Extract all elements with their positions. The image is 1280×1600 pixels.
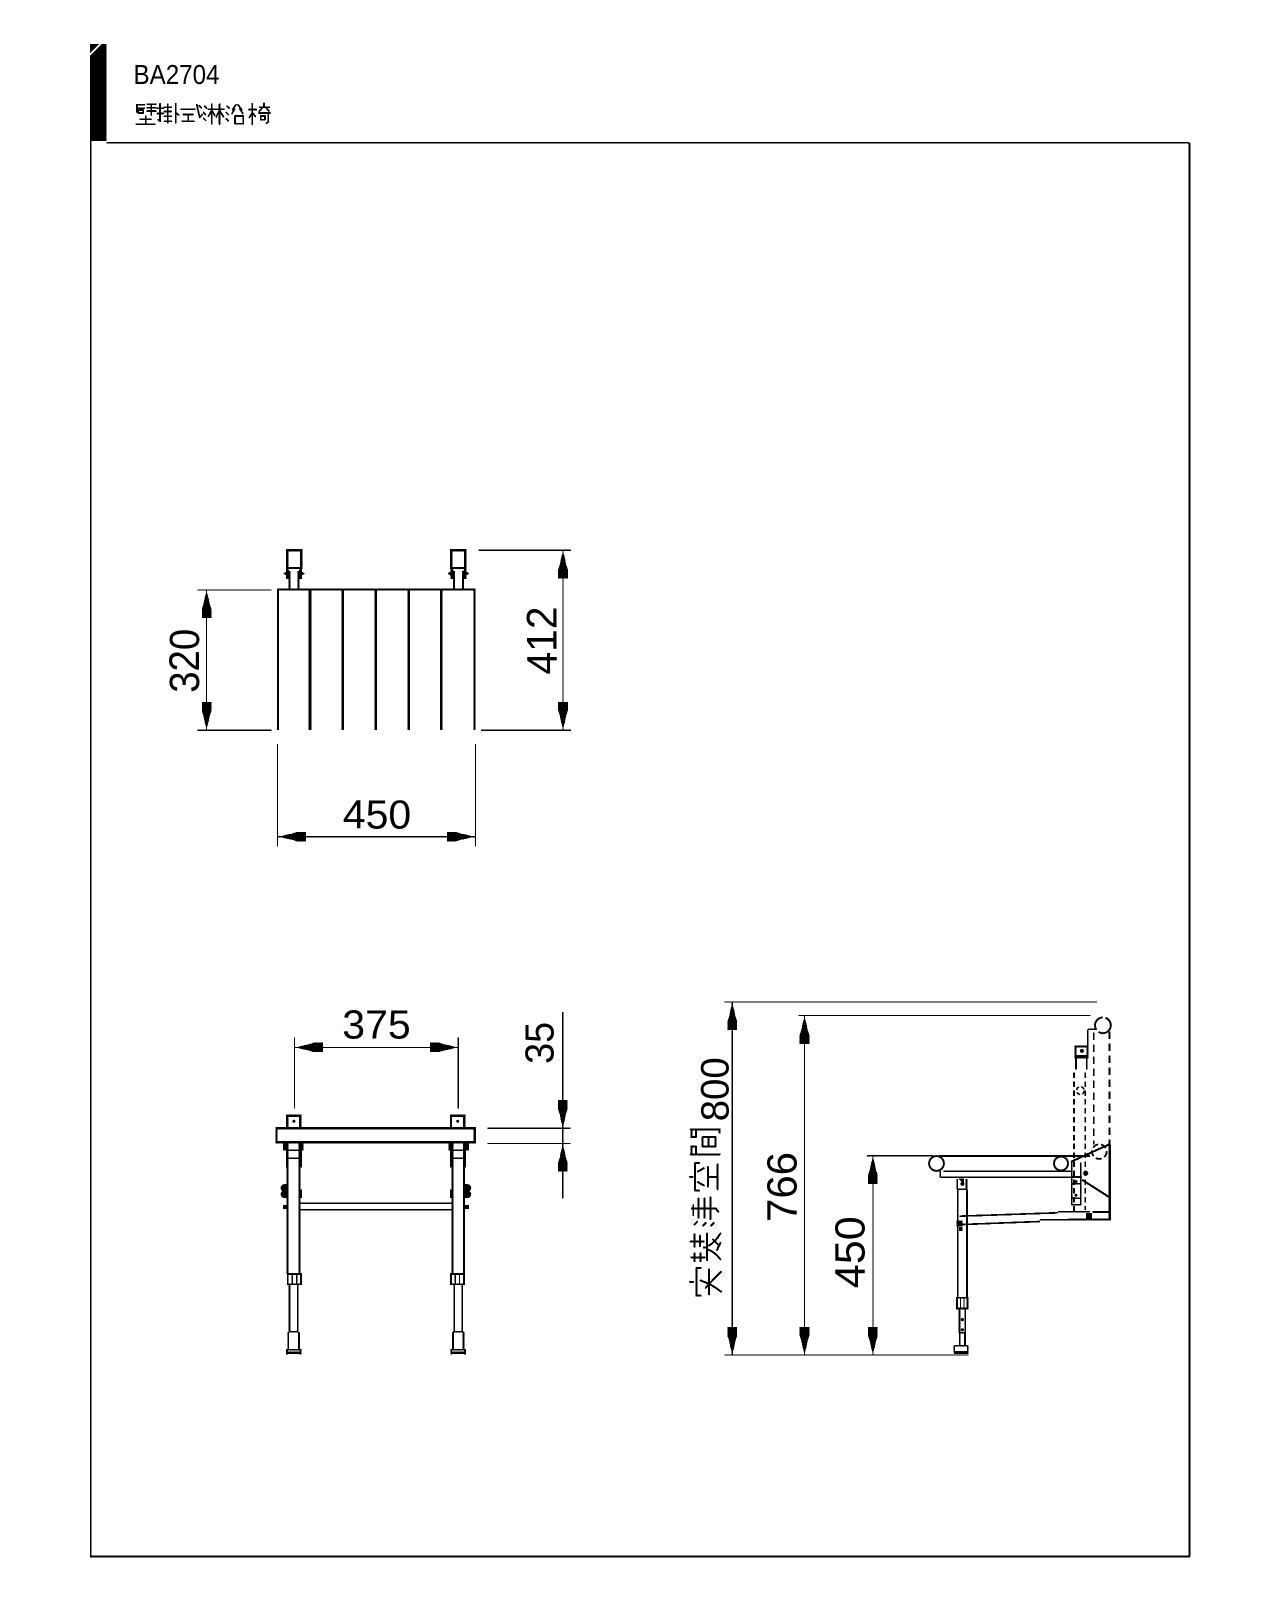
svg-text:BA2704: BA2704 xyxy=(134,59,220,90)
svg-text:375: 375 xyxy=(342,1002,410,1048)
svg-text:800: 800 xyxy=(693,1057,737,1121)
svg-text:766: 766 xyxy=(759,1152,807,1222)
svg-text:450: 450 xyxy=(343,792,411,838)
svg-text:412: 412 xyxy=(518,607,566,675)
svg-text:35: 35 xyxy=(517,1022,563,1064)
svg-text:320: 320 xyxy=(161,629,209,693)
svg-text:450: 450 xyxy=(826,1216,874,1288)
